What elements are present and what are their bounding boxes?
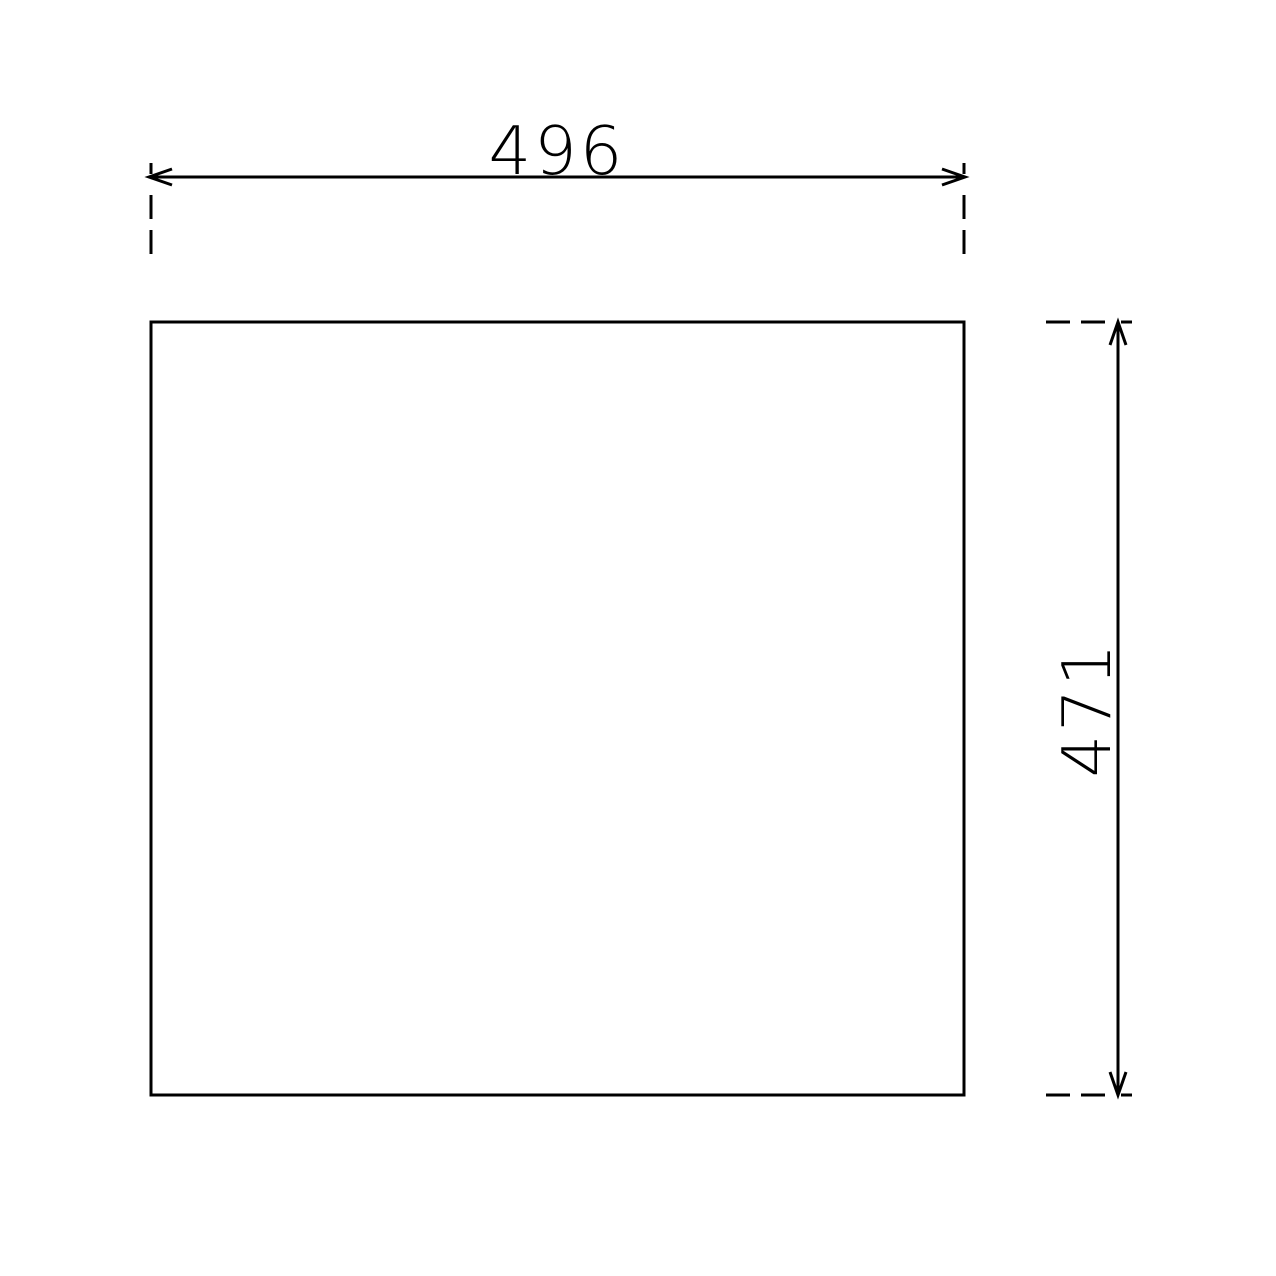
horizontal-dimension-label: 496 xyxy=(489,112,626,190)
part-outline-rect xyxy=(151,322,964,1095)
drawing-canvas: 496 471 xyxy=(0,0,1276,1276)
vertical-dimension-label: 471 xyxy=(1048,641,1126,778)
vertical-dimension: 471 xyxy=(1046,322,1132,1095)
technical-drawing: 496 471 xyxy=(0,0,1276,1276)
horizontal-dimension: 496 xyxy=(149,112,965,255)
